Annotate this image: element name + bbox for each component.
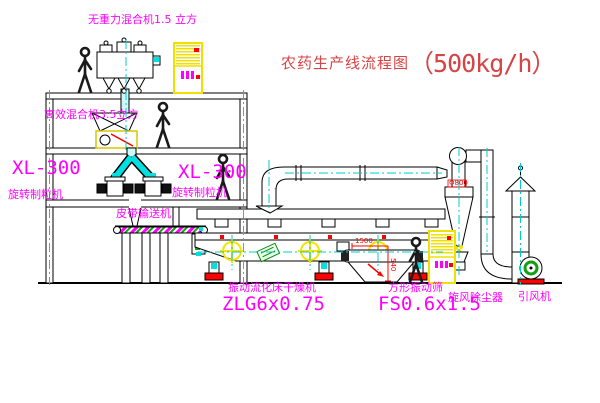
title-capacity: （500kg/h） <box>409 44 555 80</box>
label-belt-conveyor: 皮带输送机 <box>116 208 171 219</box>
label-sieve-name: 方形振动筛 <box>388 282 443 293</box>
person-roof <box>79 48 91 92</box>
control-cabinet-lower <box>429 231 455 283</box>
label-cyclone: 旋风除尘器 <box>448 292 503 303</box>
control-cabinet-upper <box>174 43 202 93</box>
label-granulator-right-model: XL-300 <box>178 163 247 182</box>
label-gravity-free-mixer: 无重力混合机1.5 立方 <box>88 14 197 25</box>
dim-sieve-length: 1500 <box>355 238 373 245</box>
granulator-left <box>97 173 133 196</box>
label-mixer-3-5: 高效混合机3.5立方 <box>44 109 139 120</box>
label-granulator-right-name: 旋转制粒机 <box>172 187 227 198</box>
label-granulator-left-name: 旋转制粒机 <box>8 189 63 200</box>
fan-duct <box>479 150 512 279</box>
main-duct <box>256 165 447 213</box>
dim-cyclone-diameter: Φ800 <box>449 180 468 187</box>
label-fan: 引风机 <box>518 291 551 302</box>
label-dryer-model: ZLG6x0.75 <box>222 295 325 314</box>
dim-sieve-height: 540 <box>389 258 396 271</box>
page-title: 农药生产线流程图 （500kg/h） <box>281 44 555 80</box>
gravity-free-mixer <box>97 38 160 113</box>
granulator-right <box>135 173 171 196</box>
label-granulator-left-model: XL-300 <box>12 159 81 178</box>
flow-diagram-page: 农药生产线流程图 （500kg/h） 无重力混合机1.5 立方 高效混合机3.5… <box>0 0 600 403</box>
label-dryer-name: 振动流化床干燥机 <box>228 282 316 293</box>
person-floor2 <box>157 103 169 147</box>
title-text: 农药生产线流程图 <box>281 52 409 73</box>
induced-draft-fan <box>518 257 544 284</box>
